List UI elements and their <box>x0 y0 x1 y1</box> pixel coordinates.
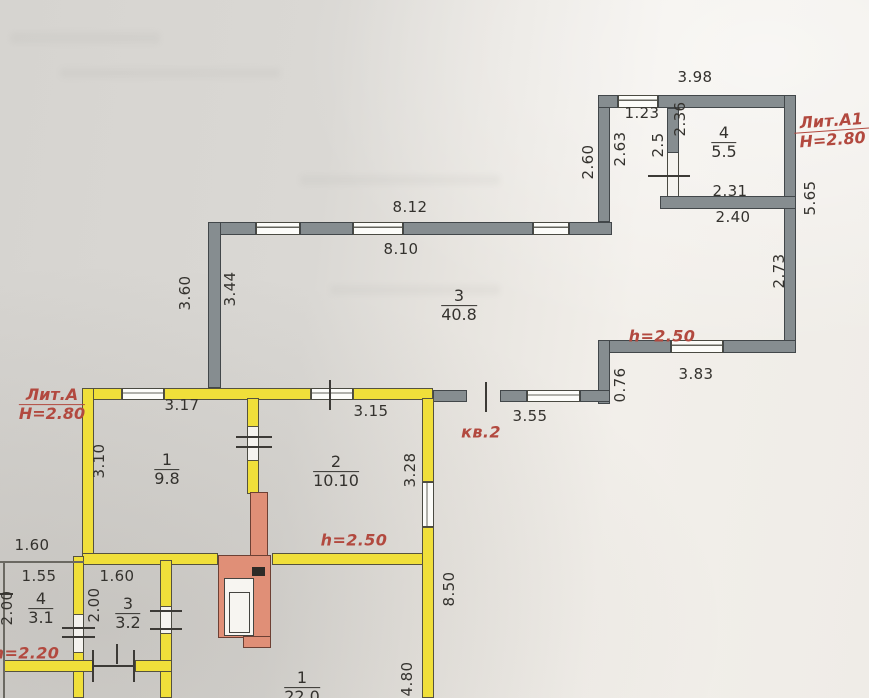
bleed-through-artifact <box>300 175 500 185</box>
room-label-1: 1 9.8 <box>154 451 179 489</box>
window-tick <box>150 628 182 630</box>
wall-segment <box>73 556 84 615</box>
dimension-label: 3.15 <box>354 402 389 420</box>
door-opening <box>73 615 84 652</box>
floor-plan-scan: 3.98 1.23 2.36 2.5 2.63 2.60 2.31 2.40 5… <box>0 0 869 698</box>
building-height: Н=2.80 <box>19 405 85 424</box>
room-label-3: 3 40.8 <box>441 287 477 325</box>
room-number: 2 <box>313 453 359 472</box>
dimension-label: 0.76 <box>611 368 629 403</box>
dimension-label: 2.73 <box>770 254 788 289</box>
dimension-label: 8.50 <box>440 572 458 607</box>
dimension-label: 1.60 <box>100 567 135 585</box>
dimension-label: 4.80 <box>398 662 416 697</box>
dimension-tick <box>485 382 487 412</box>
window-symbol <box>353 222 403 235</box>
dimension-label: 2.40 <box>716 208 751 226</box>
room-label-3-porch: 3 3.2 <box>115 595 140 633</box>
dimension-label: 3.60 <box>176 276 194 311</box>
dimension-label: 3.28 <box>401 453 419 488</box>
dimension-label: 2.60 <box>579 145 597 180</box>
door-tick <box>236 446 272 448</box>
room-area: 9.8 <box>154 470 179 489</box>
wall-segment <box>598 96 610 222</box>
stove-vent <box>252 567 265 576</box>
dimension-label: 1.23 <box>625 104 660 122</box>
ceiling-height-porch: h=2.20 <box>0 644 59 663</box>
wall-segment <box>500 390 527 402</box>
bleed-through-artifact <box>60 68 280 78</box>
window-symbol <box>533 222 569 235</box>
ceiling-height-room2: h=2.50 <box>321 531 388 550</box>
dimension-label: 3.83 <box>679 365 714 383</box>
stove-step <box>243 636 271 648</box>
door-tick <box>62 636 95 638</box>
wall-segment <box>73 652 84 698</box>
room-number: 3 <box>441 287 477 306</box>
room-area: 3.2 <box>115 614 140 633</box>
dimension-label: 3.98 <box>678 68 713 86</box>
ceiling-height-room3: h=2.50 <box>629 327 696 346</box>
room-label-1-lower: 1 22.0 <box>284 669 320 698</box>
dimension-label: 2.63 <box>611 132 629 167</box>
dimension-label: 2.5 <box>649 132 667 157</box>
room-number: 1 <box>284 669 320 688</box>
wall-segment <box>433 390 467 402</box>
building-label-lit-a: Лит.А Н=2.80 <box>19 386 85 424</box>
wall-segment <box>300 222 353 235</box>
dimension-label: 3.44 <box>221 272 239 307</box>
dimension-label: 2.36 <box>671 102 689 137</box>
room-area: 40.8 <box>441 306 477 325</box>
porch-wall-line <box>0 561 84 563</box>
wall-segment <box>422 398 434 482</box>
dimension-label: 2.31 <box>713 182 748 200</box>
room-area: 22.0 <box>284 688 320 698</box>
door-opening <box>247 427 259 460</box>
room-area: 3.1 <box>28 609 53 628</box>
room-number: 1 <box>154 451 179 470</box>
window-symbol <box>422 482 434 527</box>
room-label-4-porch: 4 3.1 <box>28 590 53 628</box>
wall-segment <box>82 553 218 565</box>
window-symbol <box>256 222 300 235</box>
building-label-lit-a1: Лит.А1 Н=2.80 <box>793 110 869 153</box>
door-tick <box>133 650 135 682</box>
stove-firebox-inner <box>229 592 250 633</box>
room-number: 4 <box>711 124 736 143</box>
room-label-4-annex: 4 5.5 <box>711 124 736 162</box>
building-height: Н=2.80 <box>799 128 866 152</box>
dimension-tick <box>329 380 331 410</box>
dimension-label: 1.55 <box>22 567 57 585</box>
dimension-label: 8.12 <box>393 198 428 216</box>
wall-segment <box>208 222 221 388</box>
window-symbol <box>527 390 580 402</box>
room-area: 5.5 <box>711 143 736 162</box>
dimension-label: 3.55 <box>513 407 548 425</box>
dimension-label: 3.17 <box>165 396 200 414</box>
wall-segment <box>160 560 172 607</box>
door-tick <box>92 650 94 682</box>
wall-segment <box>403 222 533 235</box>
window-symbol <box>311 388 353 400</box>
door-tick <box>116 644 118 664</box>
dimension-label: 5.65 <box>801 181 819 216</box>
dimension-label: 2.00 <box>0 591 16 626</box>
wall-segment <box>723 340 796 353</box>
wall-segment <box>247 460 259 494</box>
apartment-label: кв.2 <box>461 423 501 442</box>
door-tick <box>648 175 690 177</box>
bleed-through-artifact <box>10 32 160 44</box>
dimension-label: 3.10 <box>90 444 108 479</box>
wall-segment <box>569 222 612 235</box>
dimension-label: 1.60 <box>15 536 50 554</box>
wall-segment <box>580 390 610 402</box>
window-symbol <box>122 388 164 400</box>
porch-wall-line <box>3 561 5 698</box>
building-name: Лит.А <box>19 386 85 405</box>
wall-segment <box>598 95 618 108</box>
room-number: 3 <box>115 595 140 614</box>
door-tick <box>62 627 95 629</box>
wall-segment <box>422 527 434 698</box>
wall-segment <box>135 660 172 672</box>
room-number: 4 <box>28 590 53 609</box>
wall-segment <box>353 388 433 400</box>
door-tick <box>93 665 135 667</box>
dimension-label: 8.10 <box>384 240 419 258</box>
room-label-2: 2 10.10 <box>313 453 359 491</box>
wall-segment <box>272 553 423 565</box>
wall-segment <box>247 398 259 427</box>
dimension-label: 2.00 <box>85 588 103 623</box>
window-tick <box>150 610 182 612</box>
room-area: 10.10 <box>313 472 359 491</box>
stove-chimney <box>250 492 268 556</box>
door-tick <box>236 436 272 438</box>
